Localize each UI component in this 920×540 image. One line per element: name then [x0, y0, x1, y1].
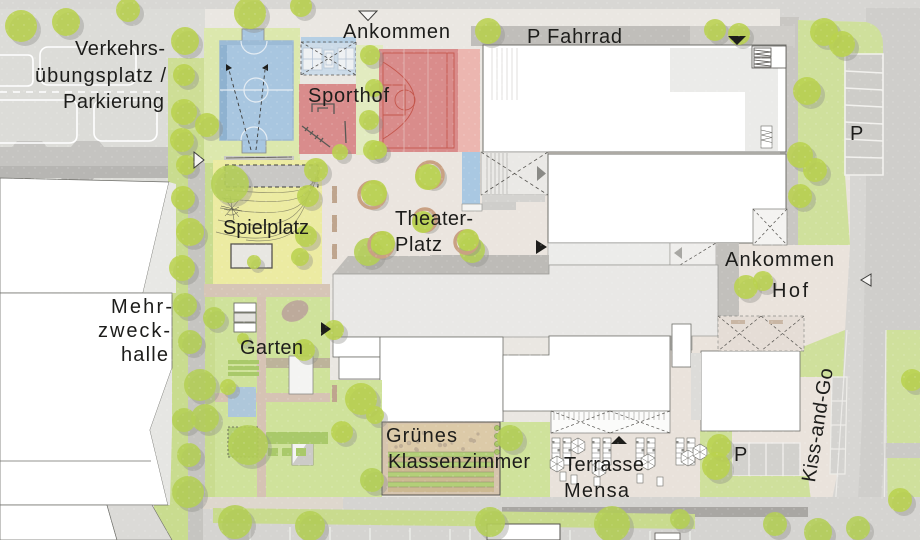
svg-text:übungsplatz /: übungsplatz /: [35, 65, 166, 87]
svg-text:P: P: [734, 444, 747, 466]
svg-text:P: P: [850, 123, 863, 145]
svg-text:Spielplatz: Spielplatz: [223, 217, 309, 239]
svg-text:Garten: Garten: [240, 337, 303, 359]
svg-text:Hof: Hof: [772, 280, 808, 302]
svg-text:Verkehrs-: Verkehrs-: [75, 38, 165, 60]
svg-text:Platz: Platz: [395, 234, 442, 256]
svg-text:Sporthof: Sporthof: [308, 85, 389, 107]
svg-text:P Fahrrad: P Fahrrad: [527, 26, 622, 48]
svg-text:Klassenzimmer: Klassenzimmer: [388, 451, 530, 473]
svg-text:Mensa: Mensa: [564, 480, 630, 502]
svg-text:Ankommen: Ankommen: [725, 249, 834, 271]
svg-text:Grünes: Grünes: [386, 425, 457, 447]
svg-text:Ankommen: Ankommen: [343, 21, 450, 43]
svg-text:Theater-: Theater-: [395, 208, 473, 230]
svg-text:Parkierung: Parkierung: [63, 91, 164, 113]
svg-text:Terrasse: Terrasse: [564, 454, 644, 476]
